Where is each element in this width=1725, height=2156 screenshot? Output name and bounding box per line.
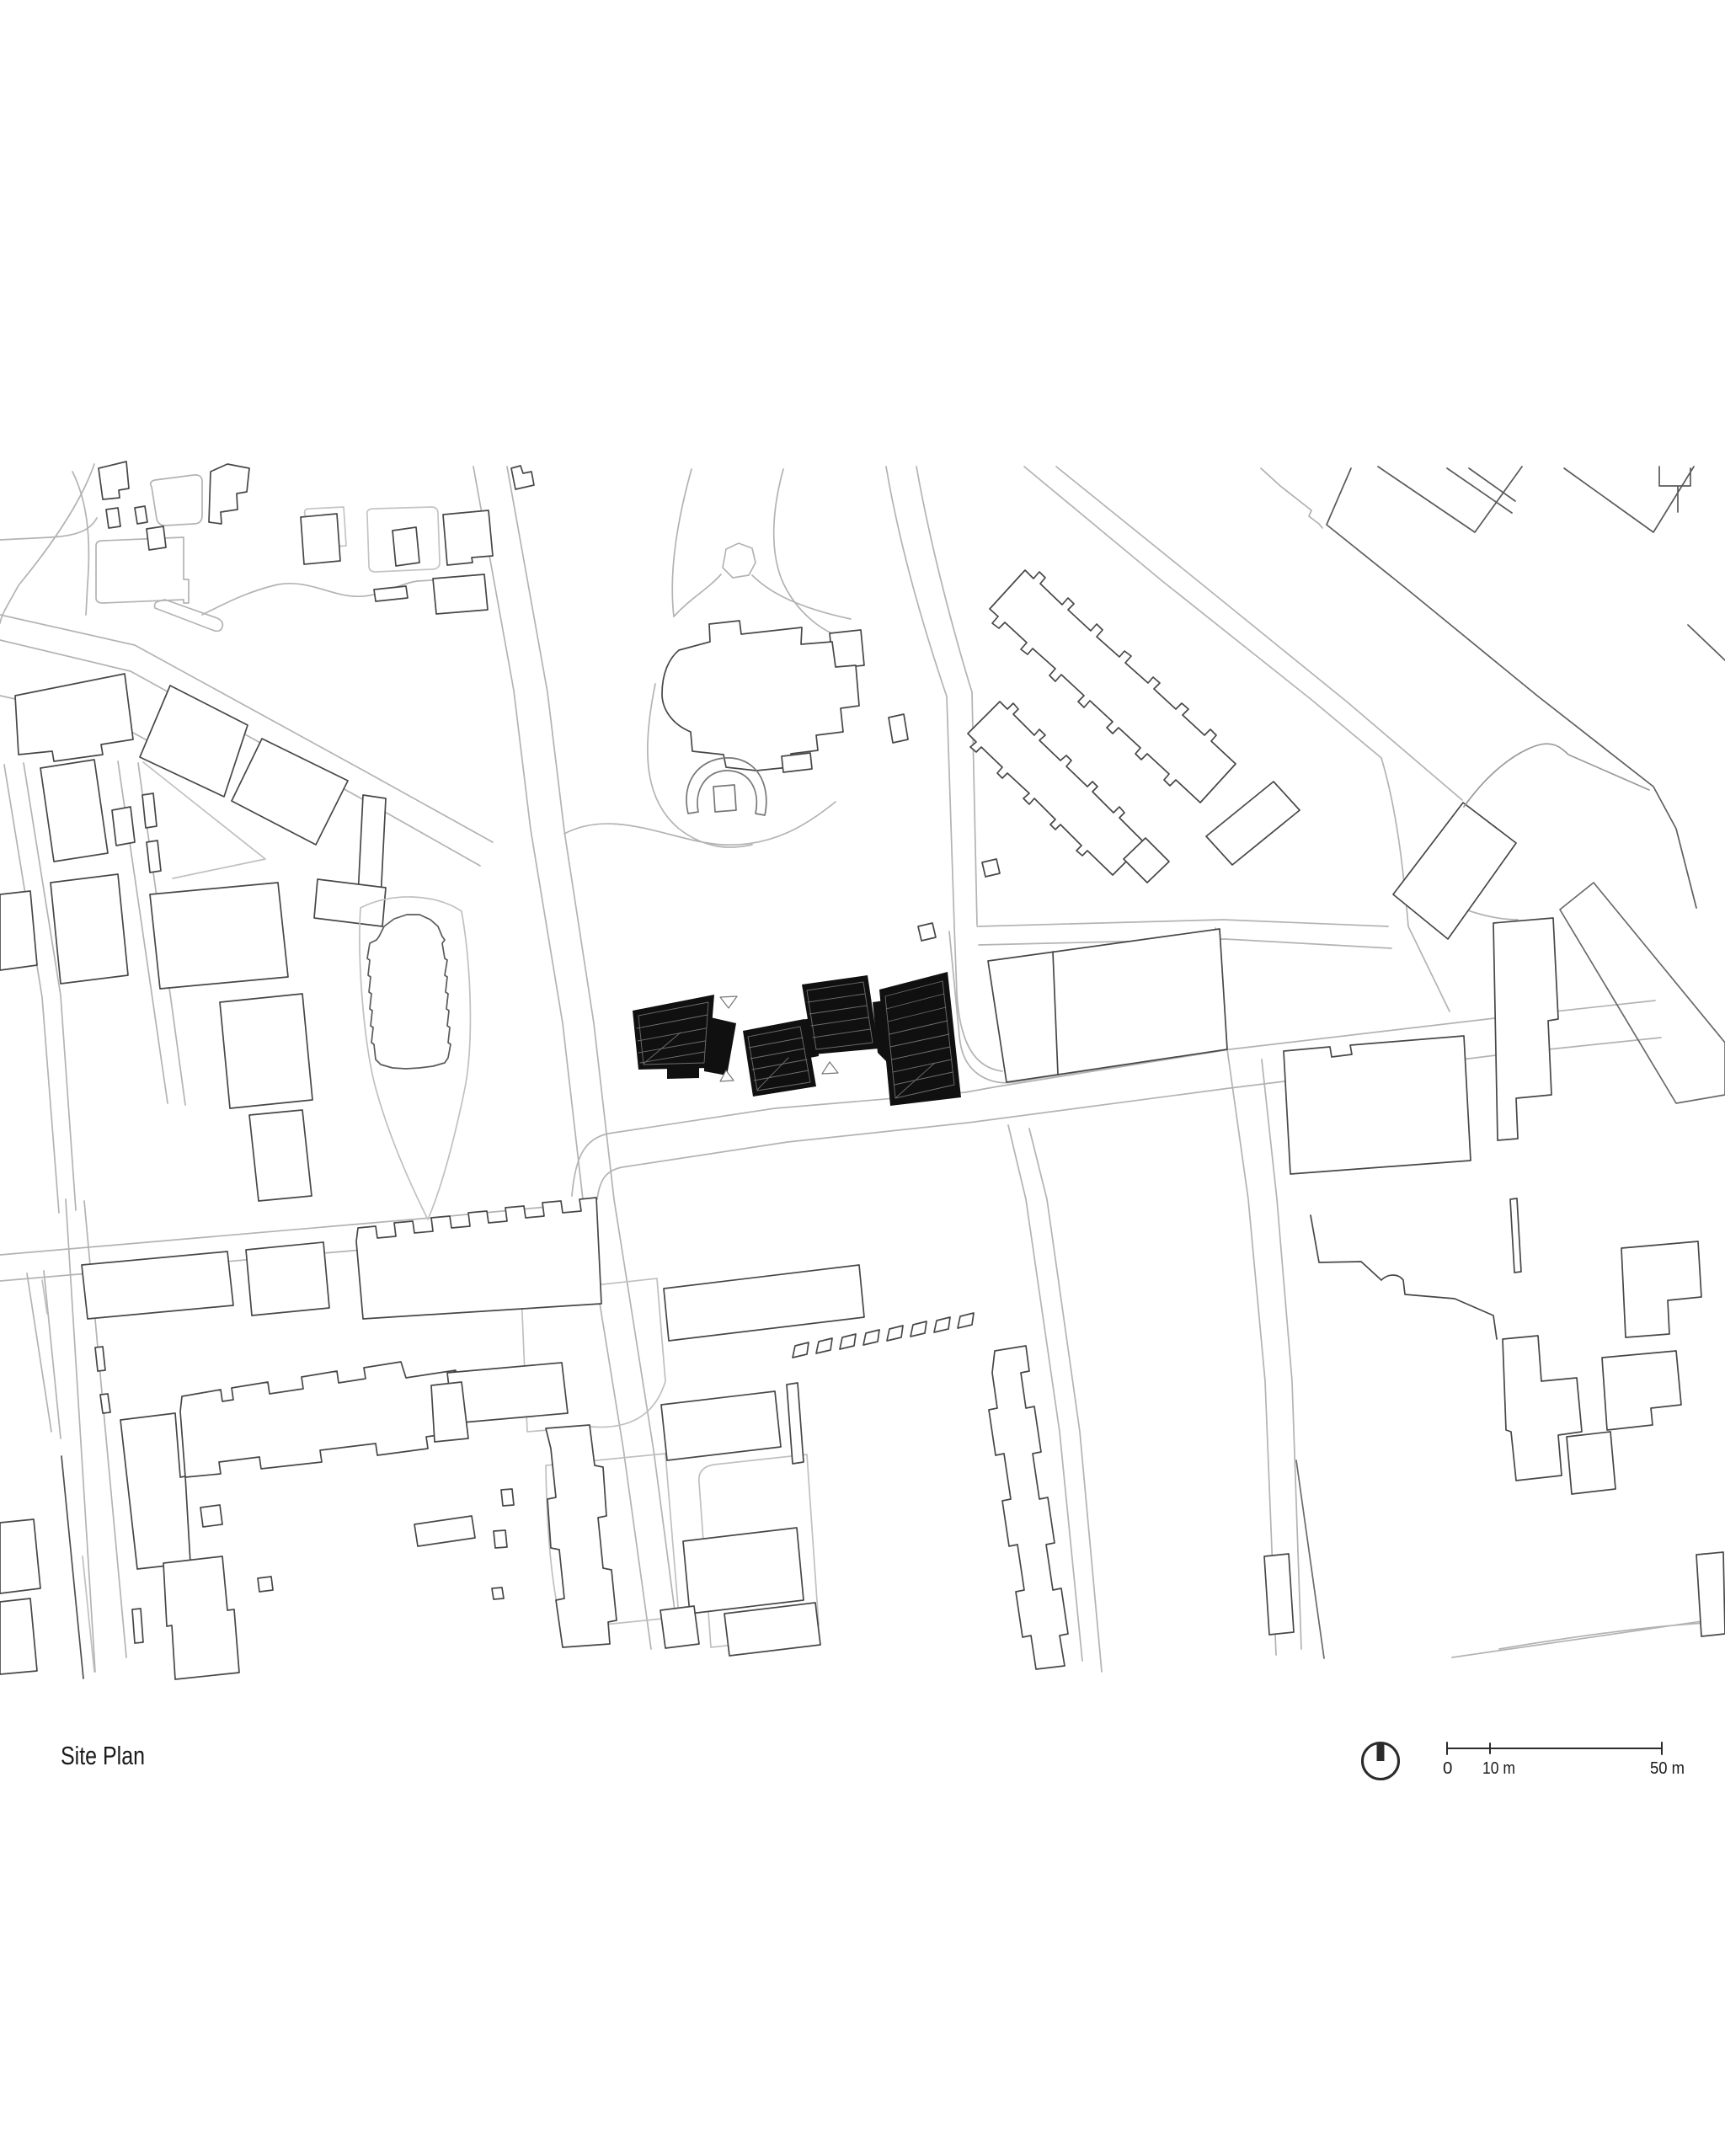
svg-text:0: 0 [1443, 1758, 1452, 1778]
svg-text:Site Plan: Site Plan [61, 1741, 145, 1770]
svg-text:10 m: 10 m [1482, 1758, 1515, 1778]
svg-text:50 m: 50 m [1650, 1758, 1685, 1778]
